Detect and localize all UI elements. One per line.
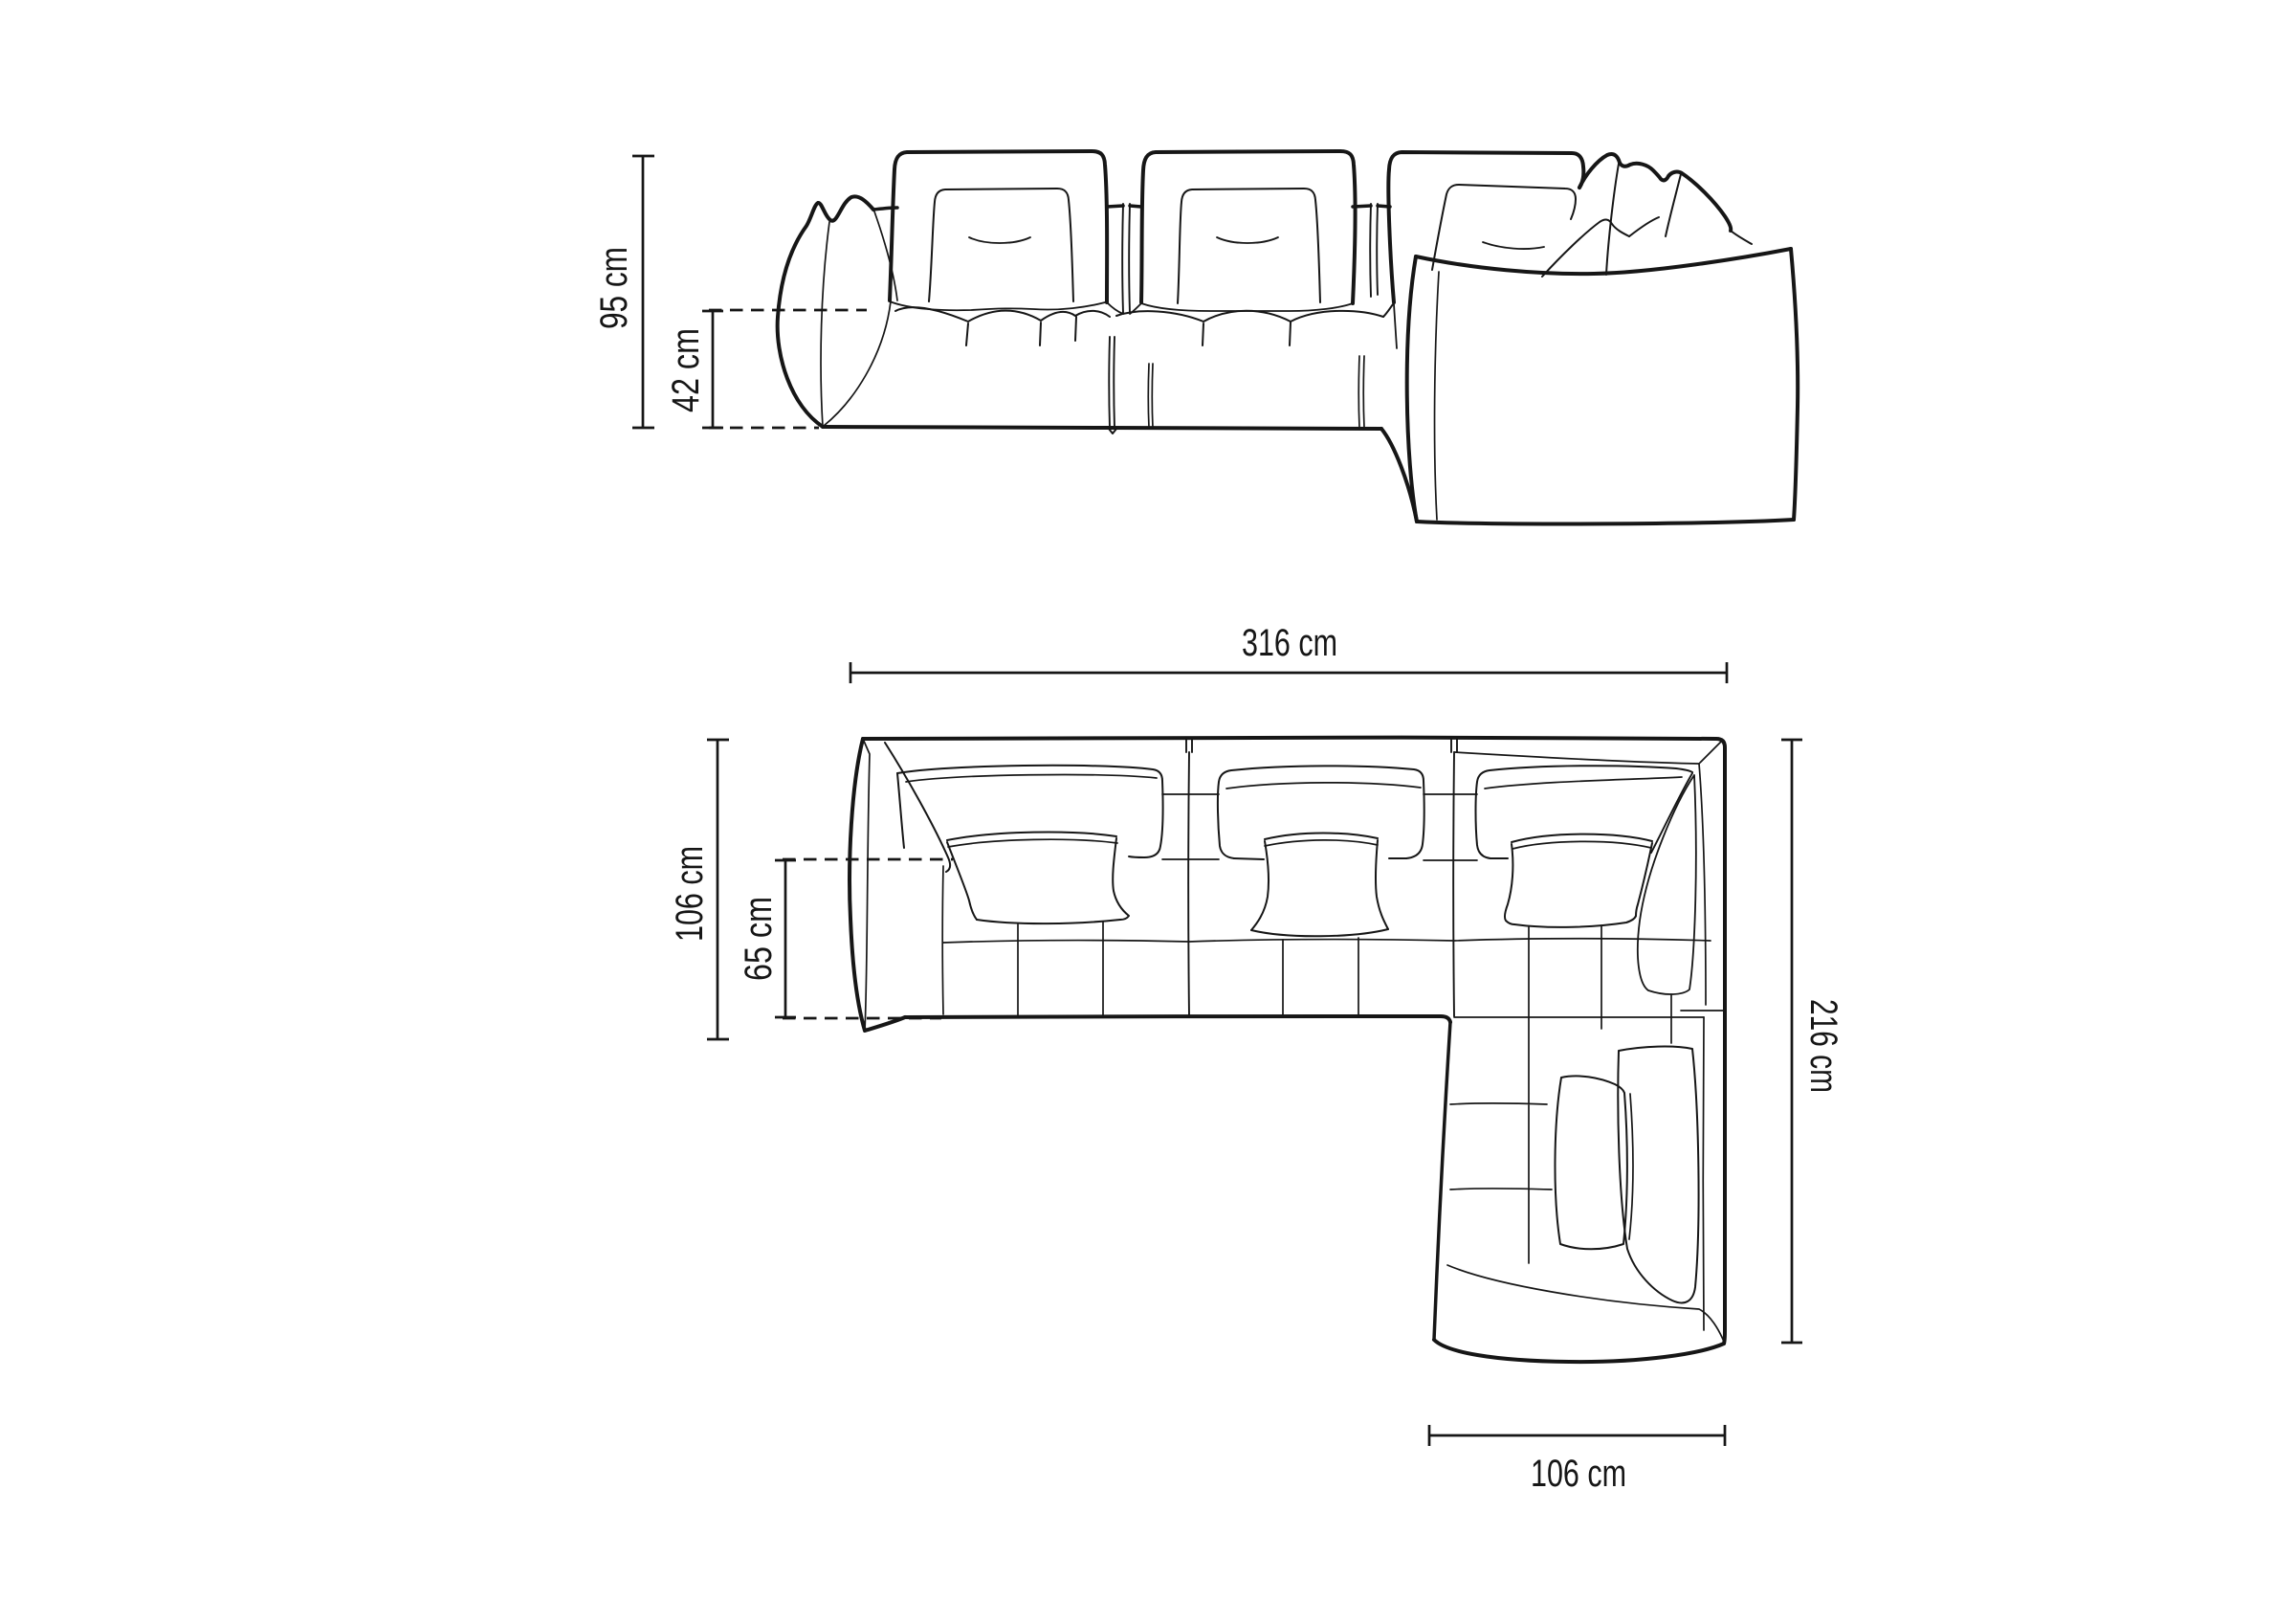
svg-text:106 cm: 106 cm [1531,1453,1626,1495]
svg-text:106 cm: 106 cm [669,846,711,942]
svg-text:216 cm: 216 cm [1802,999,1844,1093]
svg-text:42 cm: 42 cm [665,328,707,412]
svg-text:316 cm: 316 cm [1242,622,1337,664]
svg-text:65 cm: 65 cm [738,897,780,981]
svg-text:95 cm: 95 cm [593,247,635,329]
